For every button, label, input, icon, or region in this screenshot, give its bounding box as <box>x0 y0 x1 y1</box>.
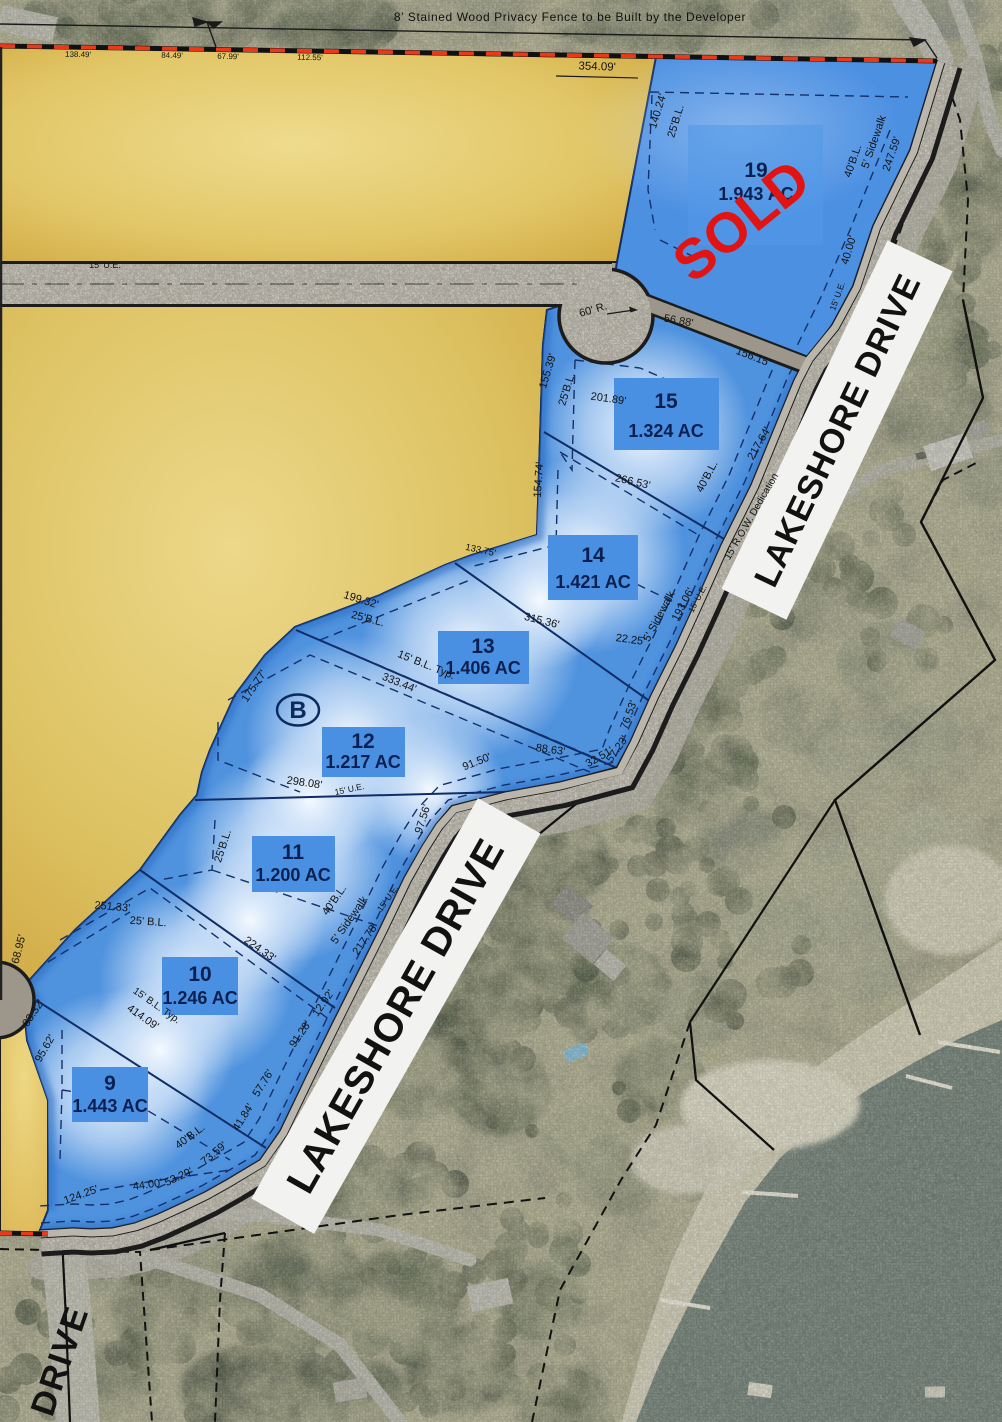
svg-text:10: 10 <box>188 963 211 986</box>
svg-text:138.49': 138.49' <box>65 50 92 59</box>
svg-text:1.217 AC: 1.217 AC <box>325 752 400 772</box>
svg-text:1.324 AC: 1.324 AC <box>628 421 703 441</box>
svg-text:1.200 AC: 1.200 AC <box>255 865 330 885</box>
svg-text:1.421 AC: 1.421 AC <box>555 572 630 592</box>
svg-text:13: 13 <box>471 635 494 658</box>
svg-text:67.99': 67.99' <box>217 52 239 61</box>
svg-text:15: 15 <box>654 390 678 413</box>
svg-text:9: 9 <box>104 1072 116 1095</box>
svg-text:1.443 AC: 1.443 AC <box>72 1096 147 1116</box>
svg-text:84.49': 84.49' <box>161 51 183 60</box>
svg-text:354.09': 354.09' <box>578 60 616 73</box>
svg-text:112.55': 112.55' <box>297 53 323 62</box>
svg-text:B: B <box>289 697 306 724</box>
svg-text:154.74': 154.74' <box>532 462 546 499</box>
svg-text:1.246 AC: 1.246 AC <box>162 988 237 1008</box>
svg-text:15' U.E.: 15' U.E. <box>89 260 121 270</box>
svg-text:8’ Stained Wood Privacy Fence: 8’ Stained Wood Privacy Fence to be Buil… <box>394 10 746 24</box>
svg-text:14: 14 <box>581 544 605 567</box>
svg-text:1.406 AC: 1.406 AC <box>445 658 520 678</box>
svg-text:11: 11 <box>282 841 305 864</box>
svg-text:12: 12 <box>351 730 374 753</box>
